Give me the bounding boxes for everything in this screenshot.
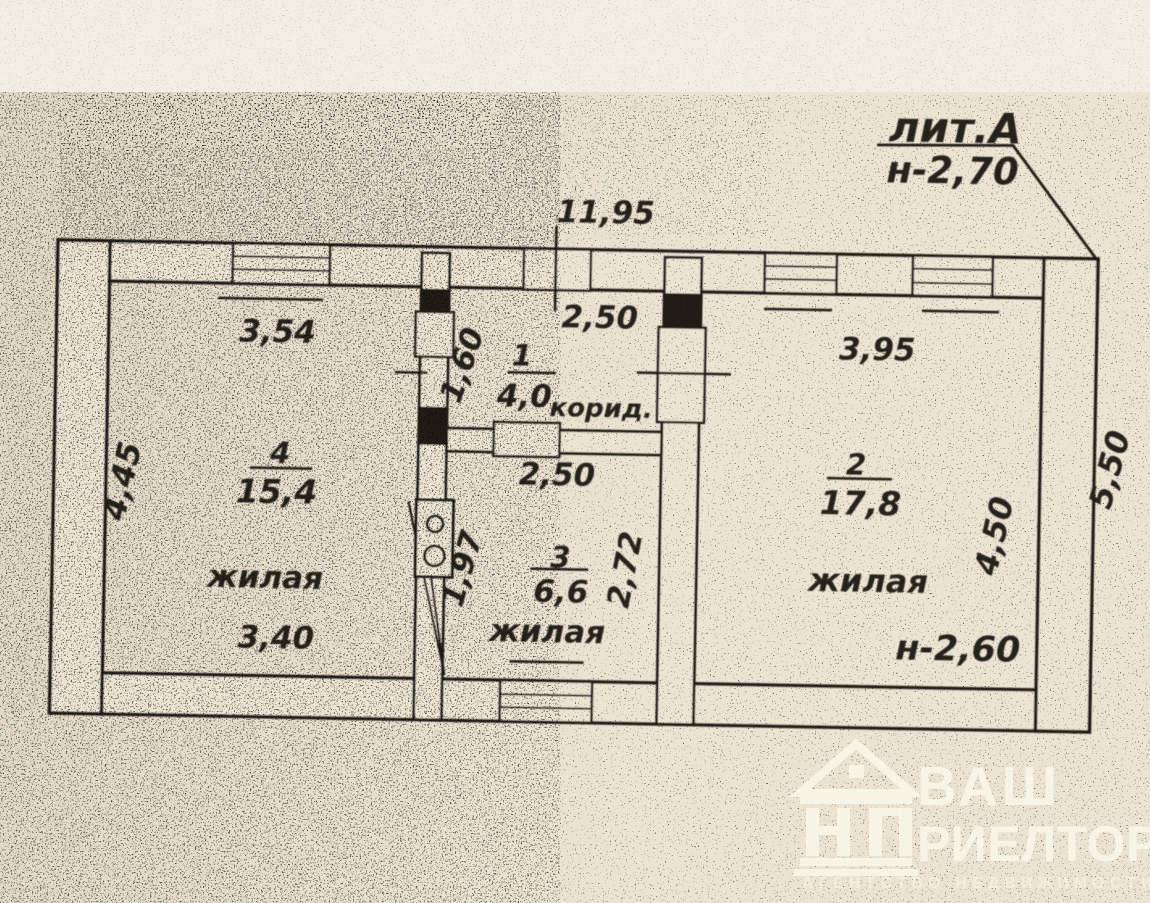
watermark-brand-bottom: РИЕЛТОР (917, 816, 1150, 872)
scan-noise-layer (555, 95, 770, 235)
logo-base (800, 858, 912, 866)
watermark-tagline: АГЕНТСТВО НЕДВИЖИМОСТИ (802, 875, 1150, 892)
logo-column (837, 808, 850, 856)
logo-column (806, 808, 819, 856)
logo-crossbar (819, 826, 837, 835)
scan-noise-layer (0, 0, 1150, 92)
scan-noise-layer (60, 95, 560, 245)
watermark-brand-top: ВАШ (917, 755, 1061, 817)
logo-topbar (869, 808, 912, 816)
floor-plan-drawing: лит.А н-2,70 11,95 5,50 3,54 4,45 4 15,4… (0, 0, 1150, 903)
scanned-floor-plan-page: лит.А н-2,70 11,95 5,50 3,54 4,45 4 15,4… (0, 0, 1150, 903)
logo-pediment-window (849, 765, 864, 778)
logo-architrave (800, 795, 912, 804)
